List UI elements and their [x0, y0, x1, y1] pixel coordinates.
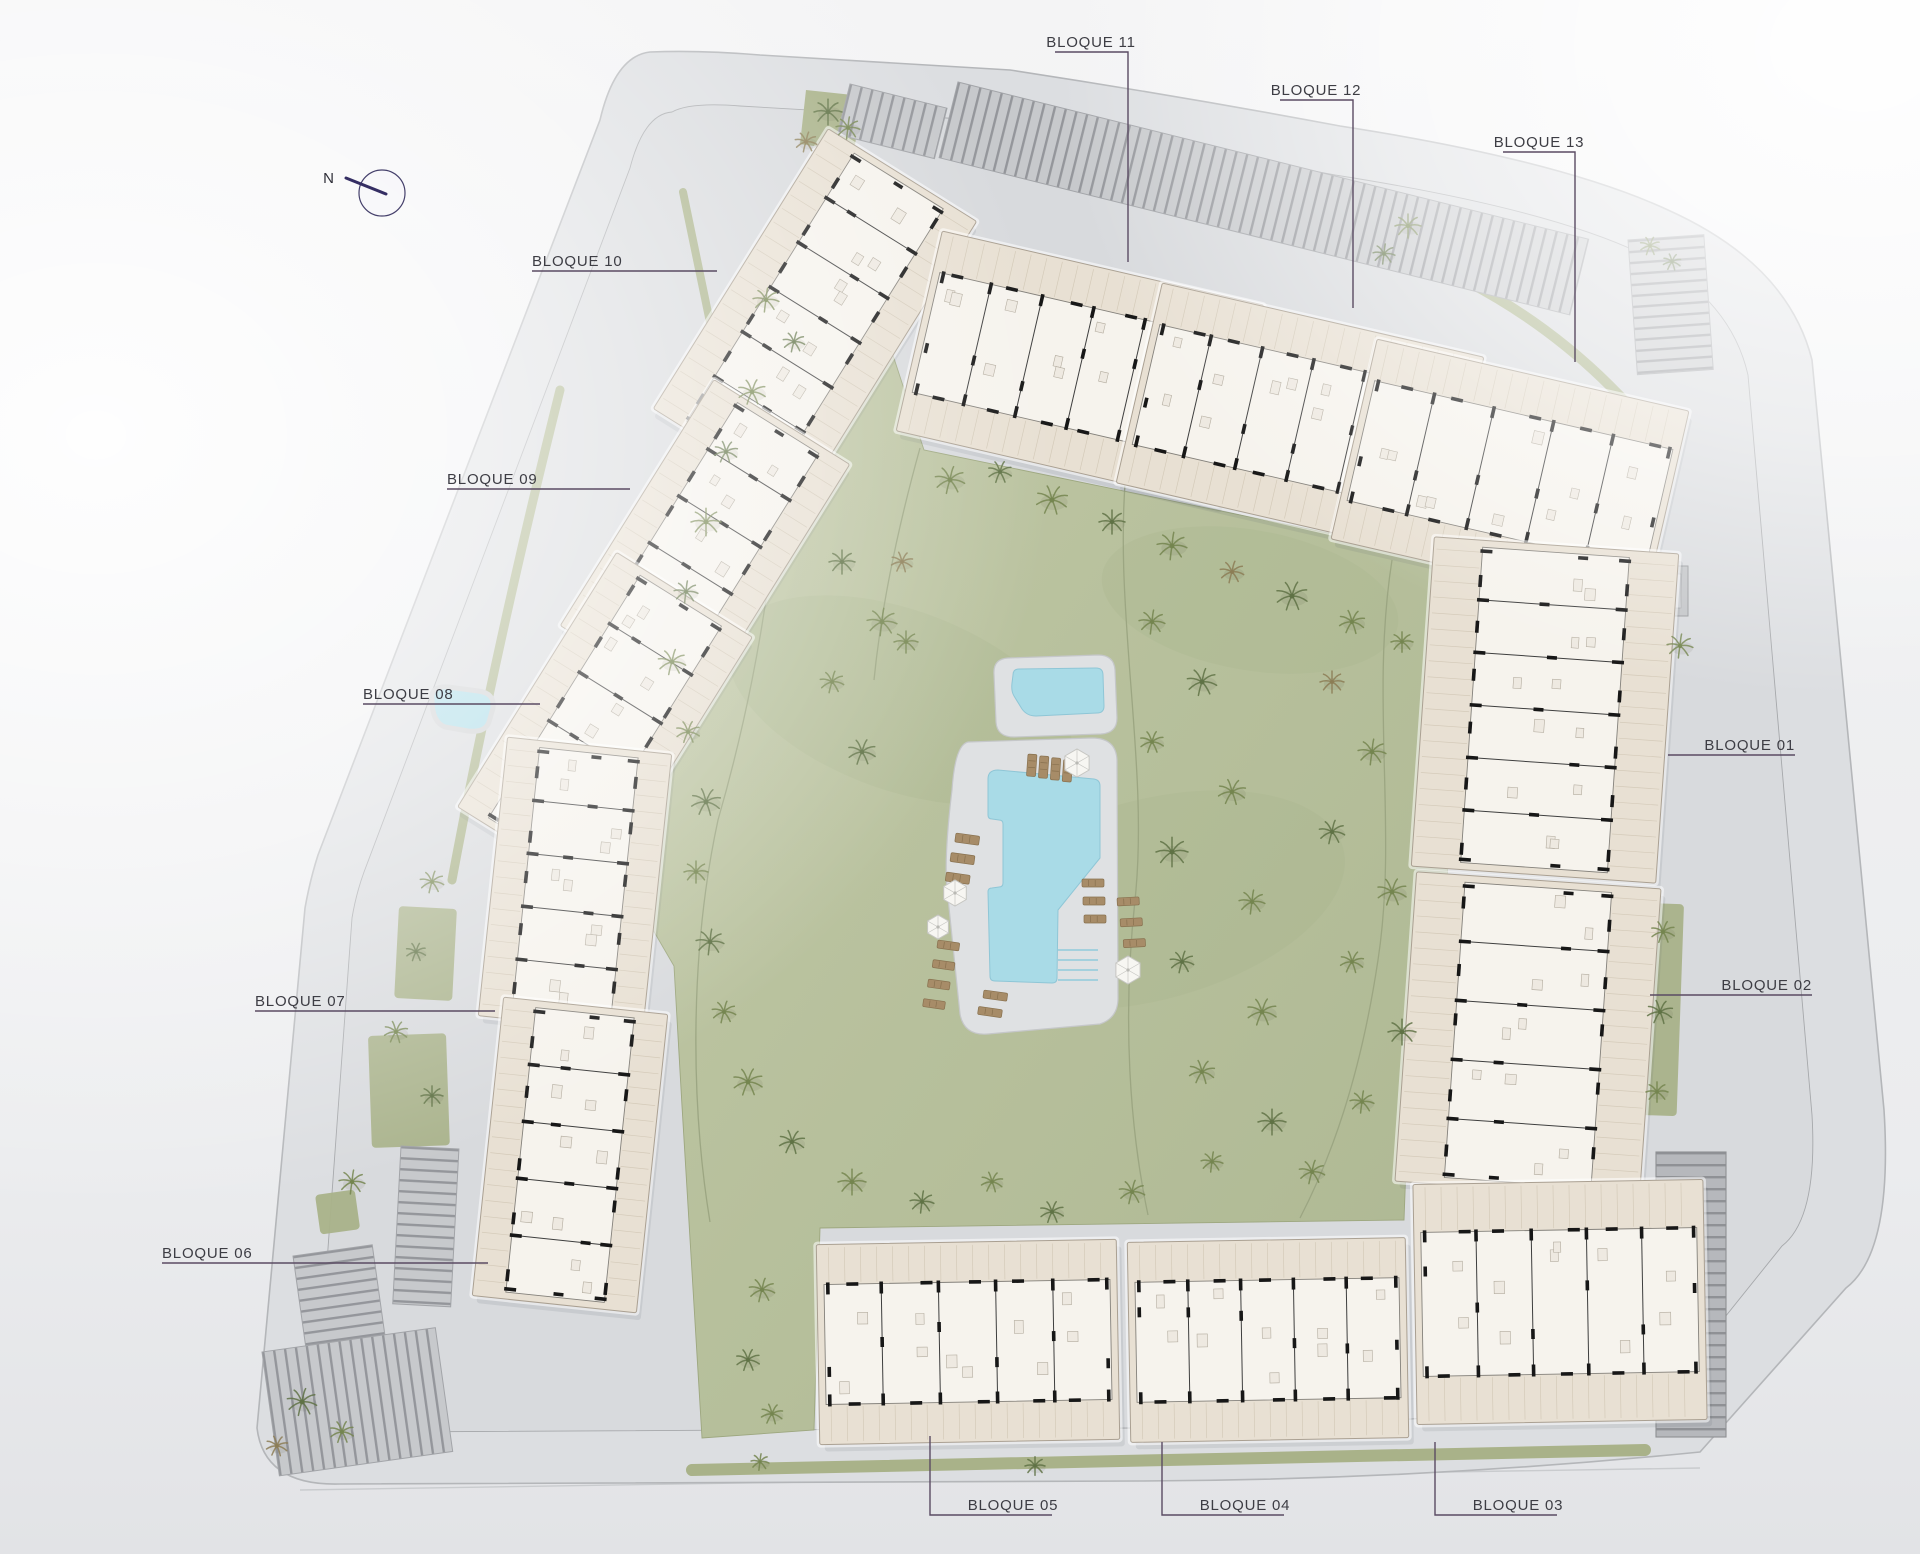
sun-lounger [1083, 897, 1105, 905]
building-block-01 [1408, 534, 1684, 891]
building-block-03 [1410, 1176, 1712, 1431]
compass-north-label: N [323, 170, 334, 187]
block-label-text: BLOQUE 09 [447, 471, 538, 488]
building-block-04 [1124, 1235, 1414, 1450]
kids-pool [1012, 668, 1104, 716]
building-block-05 [813, 1236, 1125, 1451]
sun-lounger [1120, 918, 1142, 927]
sun-lounger [1038, 756, 1049, 779]
block-label-text: BLOQUE 02 [1721, 977, 1812, 994]
block-label-text: BLOQUE 08 [363, 686, 454, 703]
sun-lounger [1050, 758, 1061, 781]
site-plan-svg: N BLOQUE 10BLOQUE 09BLOQUE 08BLOQUE 07BL… [0, 0, 1920, 1554]
block-label-text: BLOQUE 10 [532, 253, 623, 270]
block-label-text: BLOQUE 12 [1271, 82, 1362, 99]
sun-lounger [1026, 754, 1037, 777]
building-block-06 [469, 994, 673, 1320]
site-plan-page: N BLOQUE 10BLOQUE 09BLOQUE 08BLOQUE 07BL… [0, 0, 1920, 1554]
sun-lounger [1082, 879, 1104, 887]
block-label-text: BLOQUE 03 [1473, 1497, 1564, 1514]
building-block-02 [1392, 869, 1667, 1206]
parking-area [393, 1146, 459, 1307]
block-label-text: BLOQUE 13 [1494, 134, 1585, 151]
block-label-text: BLOQUE 07 [255, 993, 346, 1010]
block-label-text: BLOQUE 05 [968, 1497, 1059, 1514]
sun-lounger [1117, 897, 1139, 906]
sun-loungers-group [1082, 879, 1106, 923]
block-label-text: BLOQUE 11 [1046, 34, 1135, 51]
block-label-text: BLOQUE 06 [162, 1245, 253, 1262]
block-label-text: BLOQUE 01 [1704, 737, 1795, 754]
sun-lounger [1084, 915, 1106, 923]
parking-area [262, 1328, 453, 1476]
green-patch [315, 1189, 360, 1234]
sun-lounger [1123, 939, 1145, 948]
parking-area [293, 1245, 385, 1350]
block-label-text: BLOQUE 04 [1200, 1497, 1291, 1514]
